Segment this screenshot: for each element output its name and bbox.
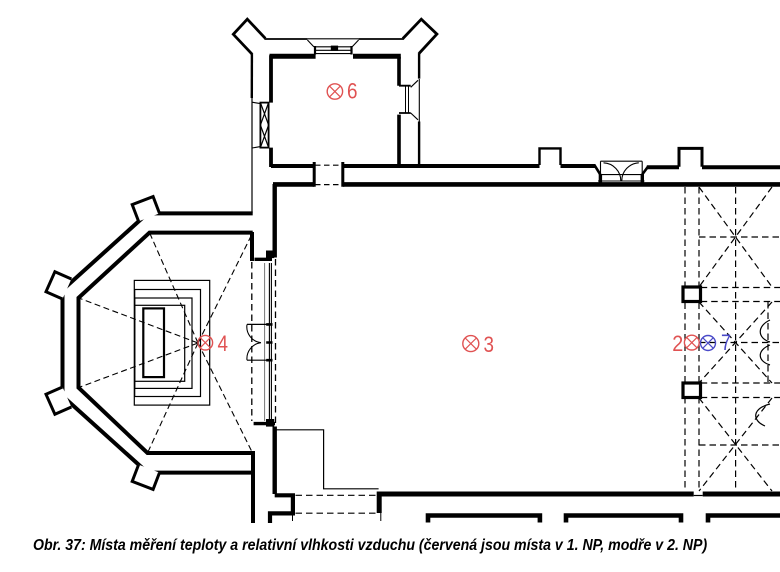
svg-text:4: 4 — [218, 331, 229, 356]
svg-text:2: 2 — [672, 331, 683, 356]
svg-text:3: 3 — [484, 332, 495, 357]
svg-text:7: 7 — [721, 330, 731, 355]
svg-text:6: 6 — [347, 79, 358, 104]
